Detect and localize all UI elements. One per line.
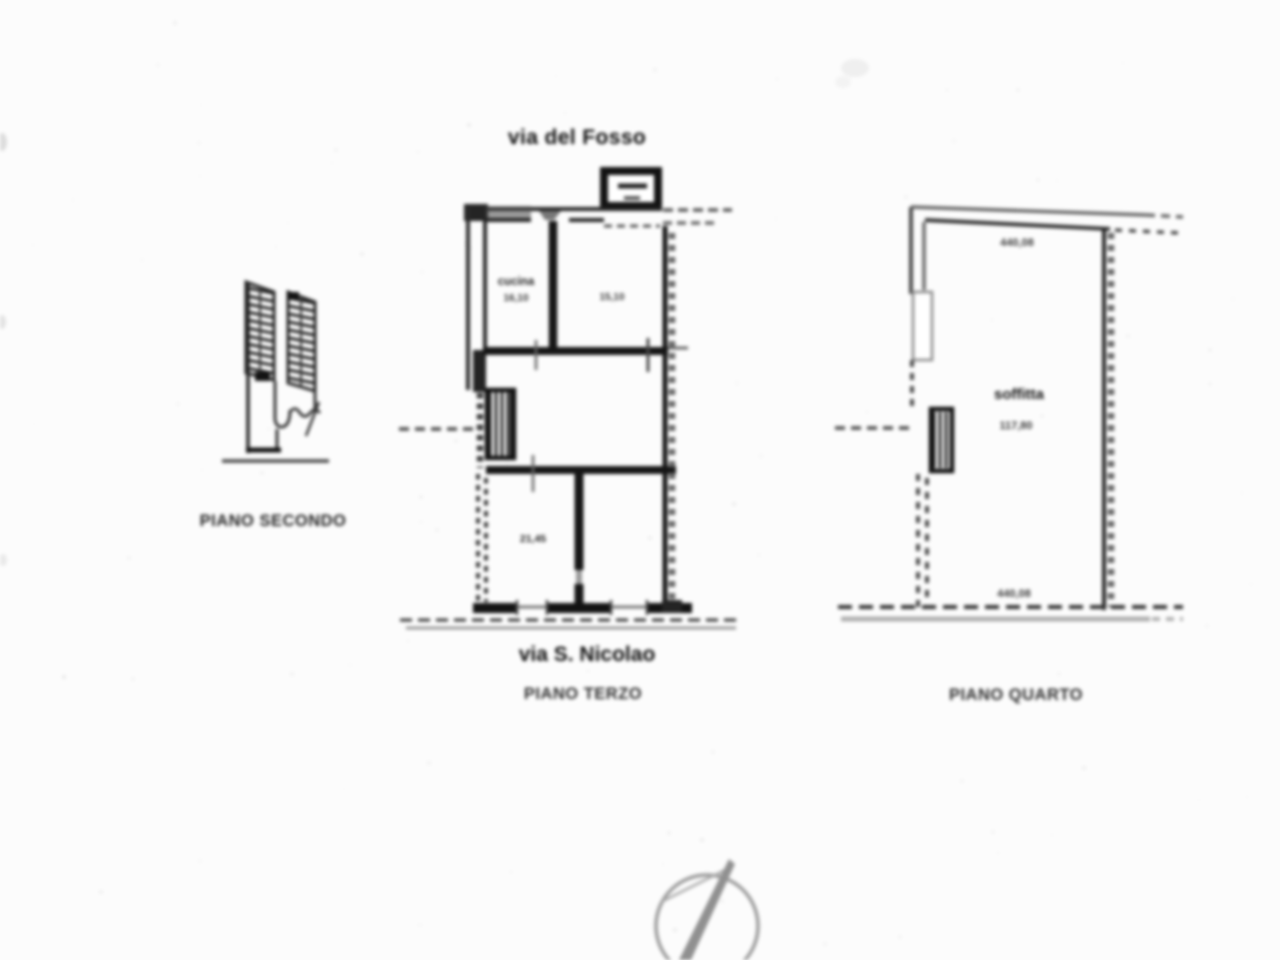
svg-text:440,08: 440,08 <box>1000 237 1034 249</box>
svg-text:PIANO SECONDO: PIANO SECONDO <box>200 512 347 530</box>
svg-text:117,80: 117,80 <box>999 420 1032 432</box>
svg-text:soffitta: soffitta <box>994 386 1045 403</box>
svg-text:PIANO QUARTO: PIANO QUARTO <box>949 686 1083 704</box>
svg-text:16,10: 16,10 <box>503 293 528 304</box>
svg-text:via S. Nicolao: via S. Nicolao <box>519 643 656 666</box>
svg-text:21,45: 21,45 <box>520 533 546 545</box>
svg-text:15,10: 15,10 <box>599 292 624 303</box>
svg-text:via del Fosso: via del Fosso <box>508 126 646 149</box>
svg-text:PIANO TERZO: PIANO TERZO <box>524 685 642 703</box>
svg-text:440,08: 440,08 <box>997 588 1031 600</box>
svg-text:cucina: cucina <box>498 276 535 288</box>
